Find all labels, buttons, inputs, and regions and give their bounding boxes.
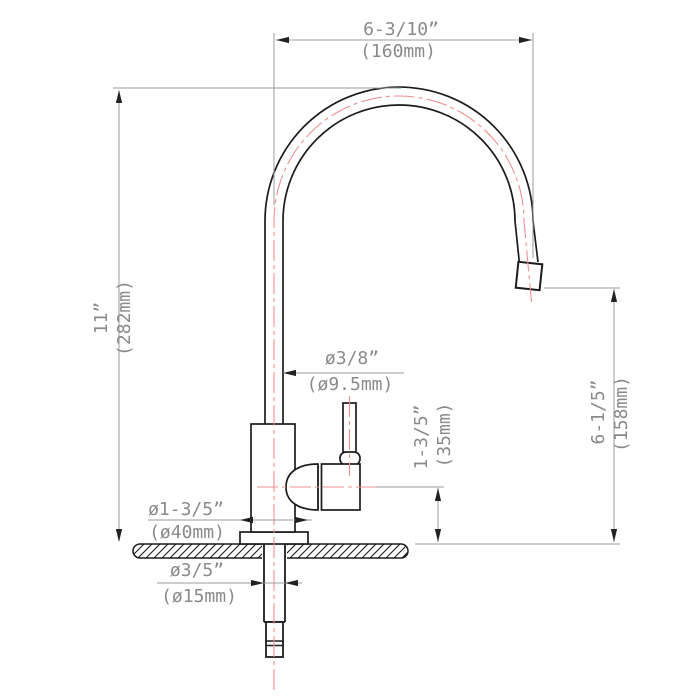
label-shank-diameter-inch: ø3/5” xyxy=(170,560,224,581)
label-base-diameter-inch: ø1-3/5” xyxy=(148,499,224,520)
label-outlet-height-mm: (158mm) xyxy=(611,376,632,452)
faucet-drawing: 6-3/10” (160mm) 11” (282mm) ø3/8” (ø9.5m… xyxy=(0,0,700,700)
label-spout-width-mm: (160mm) xyxy=(360,41,436,62)
label-base-diameter-mm: (ø40mm) xyxy=(149,522,225,543)
faucet-outline xyxy=(240,87,542,657)
label-total-height-inch: 11” xyxy=(91,302,112,335)
label-spout-diameter-mm: (ø9.5mm) xyxy=(307,374,394,395)
label-spout-diameter-inch: ø3/8” xyxy=(325,348,379,369)
dimension-labels: 6-3/10” (160mm) 11” (282mm) ø3/8” (ø9.5m… xyxy=(91,19,632,607)
label-spout-width-inch: 6-3/10” xyxy=(363,19,439,40)
label-handle-height-inch: 1-3/5” xyxy=(411,404,432,469)
label-handle-height-mm: (35mm) xyxy=(434,402,455,467)
centerlines xyxy=(257,96,532,690)
label-total-height-mm: (282mm) xyxy=(114,280,135,356)
countertop-cross-section xyxy=(133,543,408,560)
label-outlet-height-inch: 6-1/5” xyxy=(588,379,609,444)
handle-assembly xyxy=(286,403,360,510)
label-shank-diameter-mm: (ø15mm) xyxy=(161,586,237,607)
technical-drawing-canvas: 6-3/10” (160mm) 11” (282mm) ø3/8” (ø9.5m… xyxy=(0,0,700,700)
